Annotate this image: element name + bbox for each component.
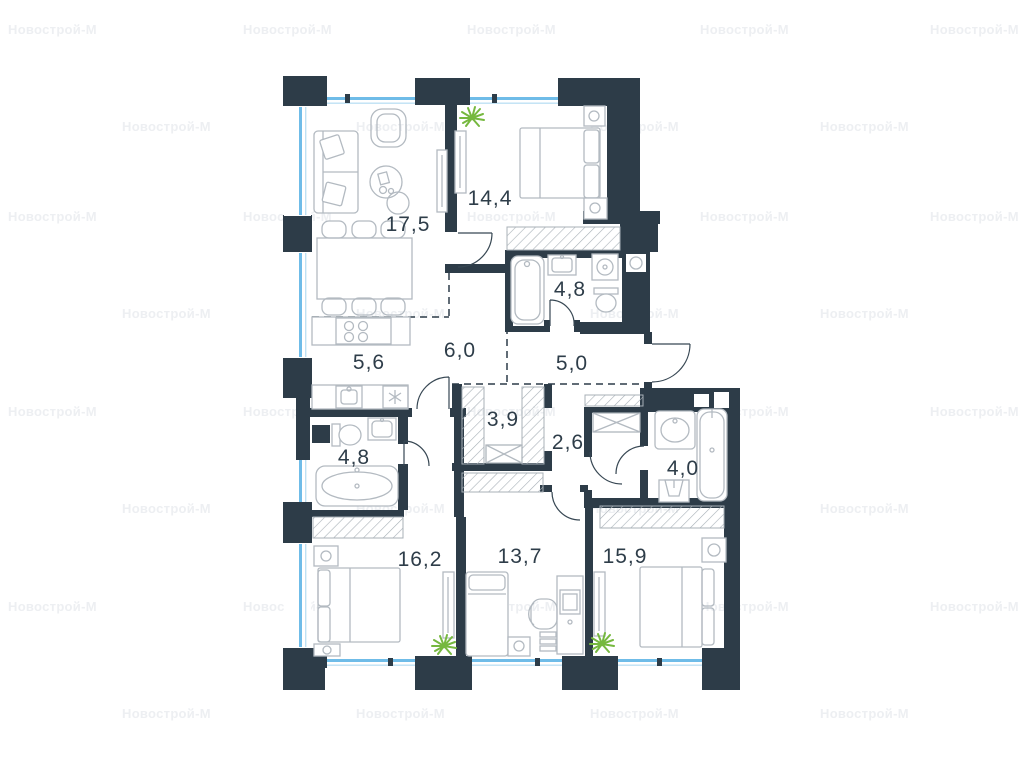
wardrobe bbox=[594, 572, 605, 636]
room-label-bedroom-right: 15,9 bbox=[603, 545, 648, 568]
room-label-closet-left: 3,9 bbox=[487, 408, 519, 431]
room-label-living: 17,5 bbox=[386, 213, 431, 236]
toilet bbox=[594, 288, 618, 312]
room-label-bathroom-left: 4,8 bbox=[338, 446, 370, 469]
room-label-bathroom-top: 4,8 bbox=[554, 278, 586, 301]
room-label-closet-right: 2,6 bbox=[552, 431, 584, 454]
desk-chair bbox=[529, 599, 557, 629]
double-bed bbox=[640, 567, 714, 647]
single-bed bbox=[466, 572, 508, 656]
desk bbox=[557, 576, 583, 654]
plant-icon bbox=[460, 107, 484, 126]
room-label-room-middle: 13,7 bbox=[498, 545, 543, 568]
wardrobe bbox=[455, 131, 466, 193]
nightstand bbox=[584, 198, 607, 219]
bathtub bbox=[316, 466, 398, 506]
nightstand bbox=[702, 538, 726, 562]
shelf-books bbox=[540, 632, 556, 651]
crossed-wardrobe-box bbox=[486, 445, 522, 463]
nightstand bbox=[584, 106, 605, 126]
washing-machine bbox=[592, 254, 618, 280]
counter-bottom bbox=[312, 385, 408, 409]
bathtub bbox=[511, 256, 544, 324]
crossed-wardrobe-box bbox=[593, 413, 640, 432]
tv-unit bbox=[437, 150, 447, 212]
double-bed bbox=[318, 568, 400, 642]
toilet bbox=[332, 424, 361, 446]
vent-fan bbox=[626, 254, 646, 272]
bathtub bbox=[697, 409, 727, 501]
sink bbox=[368, 418, 396, 440]
room-label-bathroom-right: 4,0 bbox=[667, 457, 699, 480]
room-label-bedroom-top: 14,4 bbox=[468, 187, 513, 210]
sink bbox=[655, 411, 695, 449]
room-label-corridor: 6,0 bbox=[444, 339, 476, 362]
nightstand bbox=[314, 644, 340, 656]
bathroom-right-fixtures bbox=[655, 409, 727, 502]
floor-plan: 17,5 14,4 4,8 5,6 6,0 5,0 3,9 2,6 4,8 4,… bbox=[0, 0, 1024, 768]
room-label-kitchen: 5,6 bbox=[353, 351, 385, 374]
coffee-table bbox=[370, 166, 409, 214]
living-room-furniture bbox=[314, 109, 447, 315]
sofa bbox=[314, 131, 358, 213]
double-bed bbox=[520, 128, 600, 198]
room-label-hallway: 5,0 bbox=[556, 352, 588, 375]
wardrobe bbox=[443, 572, 454, 638]
counter-top bbox=[312, 317, 410, 345]
sink bbox=[548, 255, 576, 275]
nightstand bbox=[314, 546, 338, 566]
armchair bbox=[371, 109, 406, 147]
floor-plan-page: Новострой-МНовострой-МНовострой-МНовостр… bbox=[0, 0, 1024, 768]
toilet bbox=[659, 480, 689, 502]
room-label-bedroom-left: 16,2 bbox=[398, 548, 443, 571]
room-middle-furniture bbox=[466, 572, 583, 656]
nightstand bbox=[508, 637, 530, 656]
